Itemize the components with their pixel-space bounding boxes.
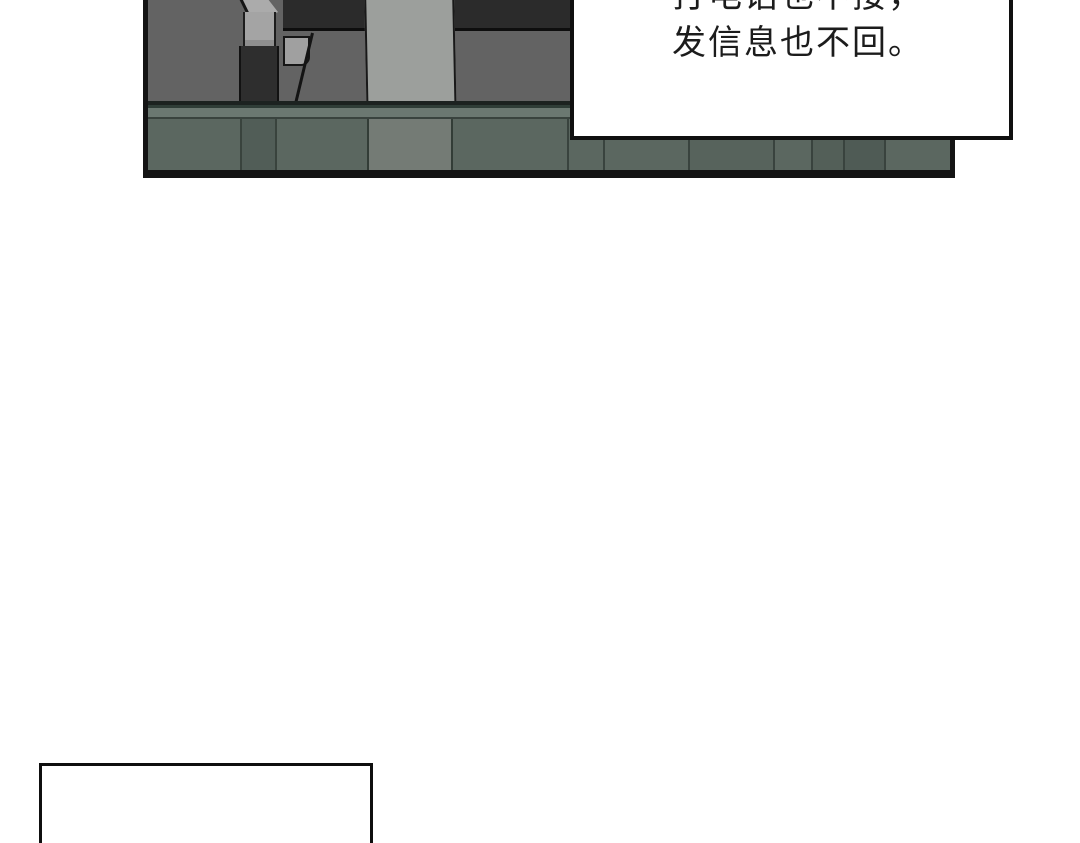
comic-page: 打电话也不接， 发信息也不回。 (0, 0, 1080, 843)
chair-backrest (243, 12, 276, 48)
speech-bubble: 打电话也不接， 发信息也不回。 (570, 0, 1013, 140)
speech-line-2: 发信息也不回。 (672, 20, 924, 67)
speech-text: 打电话也不接， 发信息也不回。 (672, 0, 924, 67)
speech-line-1: 打电话也不接， (672, 0, 924, 20)
floor-seam (567, 119, 569, 170)
chair-leg-column (239, 46, 279, 104)
next-panel-box (39, 763, 373, 843)
floor-reflection-light (367, 119, 453, 170)
floor-reflection-dark (240, 119, 277, 170)
foreground-pillar (363, 0, 456, 107)
